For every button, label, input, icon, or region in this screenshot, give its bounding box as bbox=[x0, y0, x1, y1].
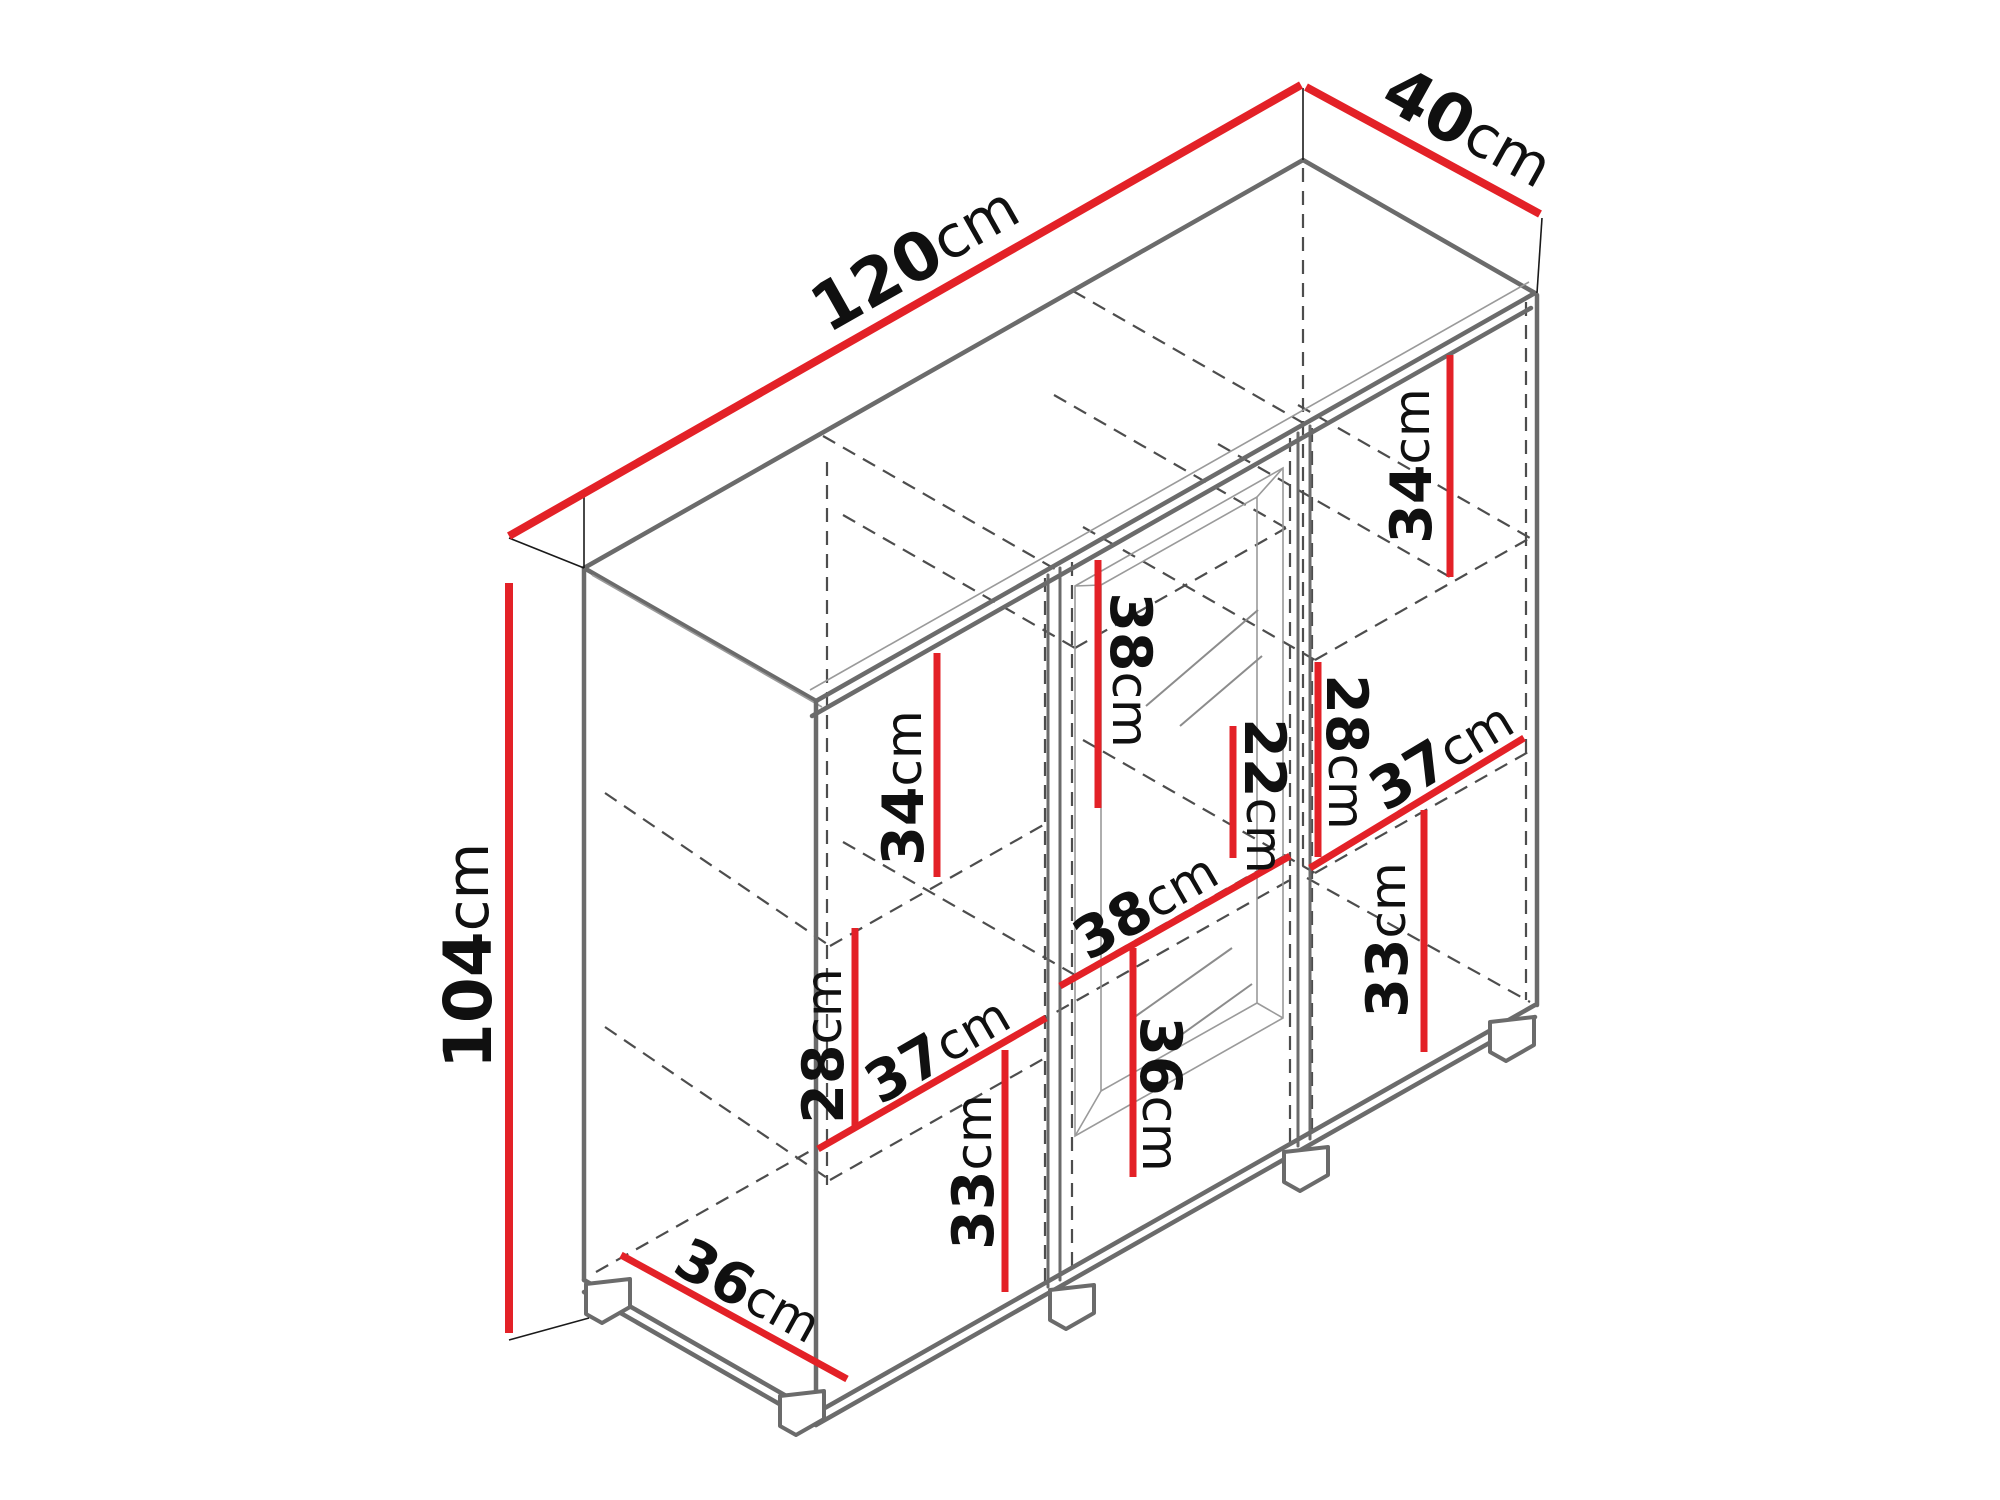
dim-label-height: 104cm bbox=[430, 843, 507, 1069]
dim-label-left-lower: 33cm bbox=[941, 1094, 1007, 1250]
dim-label-right-middle: 28cm bbox=[1313, 674, 1379, 830]
foot bbox=[1490, 1017, 1534, 1061]
extension-lines bbox=[509, 88, 1542, 1340]
dim-label-center-upper: 38cm bbox=[1097, 592, 1163, 748]
dim-label-right-lower: 33cm bbox=[1355, 862, 1421, 1018]
dimension-labels: 120cm 40cm 104cm 34cm 38cm 34cm 22cm 28c… bbox=[430, 51, 1566, 1359]
diagram-canvas: 120cm 40cm 104cm 34cm 38cm 34cm 22cm 28c… bbox=[0, 0, 2000, 1500]
foot bbox=[780, 1391, 824, 1435]
hidden-lines bbox=[596, 168, 1530, 1282]
dim-label-left-upper: 34cm bbox=[871, 710, 937, 866]
dim-label-center-glass: 22cm bbox=[1231, 718, 1297, 874]
dim-label-center-lower: 36cm bbox=[1127, 1016, 1193, 1172]
dim-label-right-top: 34cm bbox=[1379, 388, 1445, 544]
dim-label-depth: 40cm bbox=[1371, 51, 1566, 206]
foot bbox=[1284, 1147, 1328, 1191]
foot bbox=[1050, 1285, 1094, 1329]
cabinet-dimension-diagram: 120cm 40cm 104cm 34cm 38cm 34cm 22cm 28c… bbox=[0, 0, 2000, 1500]
dim-label-left-middle: 28cm bbox=[791, 968, 857, 1124]
dimension-lines bbox=[509, 85, 1540, 1379]
